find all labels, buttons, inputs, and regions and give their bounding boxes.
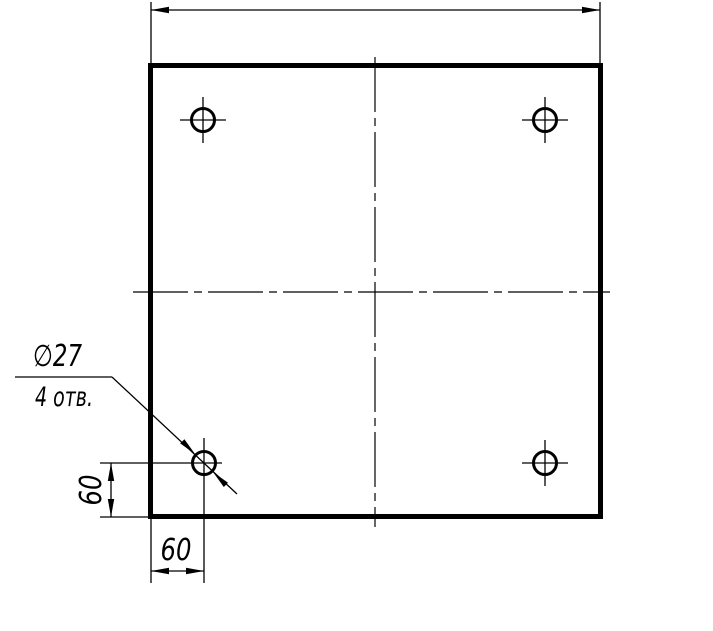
plate-drawing-svg: 60 60 ∅27 4 отв.: [0, 0, 713, 631]
dimension-hole-offset-horizontal: 60: [151, 519, 204, 583]
dimension-value-vertical: 60: [74, 475, 109, 506]
dimension-value-horizontal: 60: [161, 533, 192, 568]
arrowhead-left: [151, 7, 169, 13]
leader-arrowhead-lower: [213, 472, 228, 487]
hole-bottom-right: [522, 440, 568, 486]
leader-arrowhead-upper: [180, 439, 195, 454]
hole-count-label: 4 отв.: [35, 382, 93, 413]
hole-diameter-label: ∅27: [33, 339, 82, 374]
arrowhead-right: [186, 568, 204, 574]
hole-top-left: [180, 97, 226, 143]
hole-top-right: [522, 97, 568, 143]
arrowhead-left: [151, 568, 169, 574]
dimension-overall-width: [151, 2, 600, 63]
arrowhead-right: [582, 7, 600, 13]
drawing-canvas: 60 60 ∅27 4 отв.: [0, 0, 713, 631]
dimension-hole-offset-vertical: 60: [74, 463, 150, 517]
